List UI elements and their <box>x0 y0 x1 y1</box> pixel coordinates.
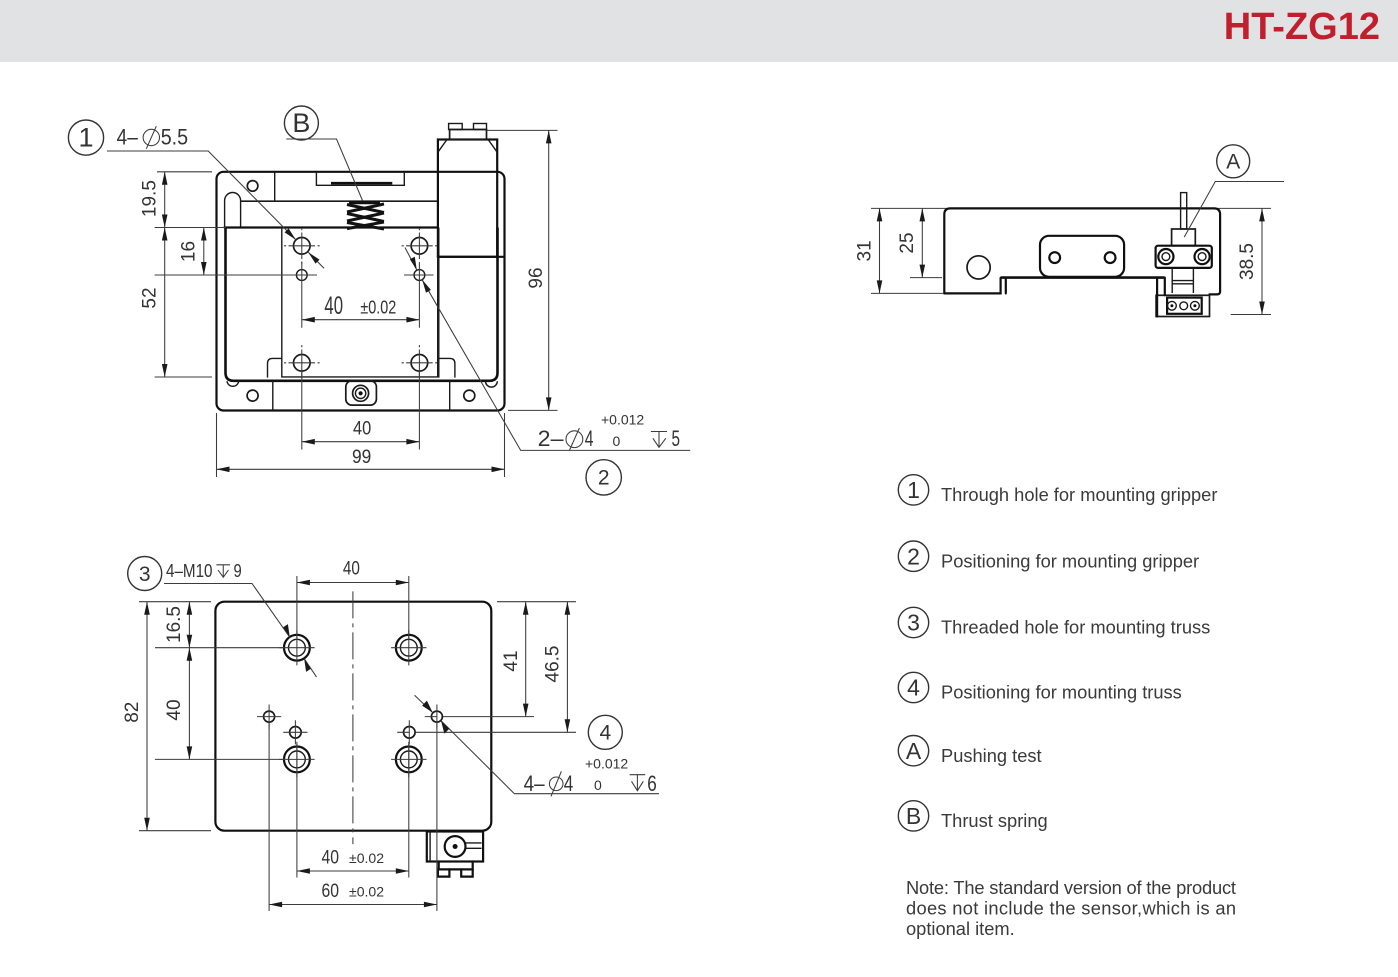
svg-text:5: 5 <box>672 426 681 451</box>
svg-text:4: 4 <box>907 675 920 701</box>
svg-text:±0.02: ±0.02 <box>349 884 384 900</box>
svg-text:16: 16 <box>179 241 200 262</box>
svg-text:B: B <box>906 803 921 829</box>
svg-text:5.5: 5.5 <box>161 125 188 150</box>
svg-text:2: 2 <box>907 543 920 569</box>
svg-text:2–: 2– <box>538 426 564 451</box>
svg-text:3: 3 <box>139 563 151 586</box>
svg-text:19.5: 19.5 <box>140 180 161 217</box>
svg-text:16.5: 16.5 <box>164 606 185 643</box>
svg-text:40: 40 <box>343 559 360 580</box>
svg-text:40: 40 <box>322 848 340 869</box>
svg-text:40: 40 <box>324 292 343 320</box>
svg-text:46.5: 46.5 <box>543 646 564 683</box>
svg-text:A: A <box>906 738 922 764</box>
svg-text:Note: The standard version of: Note: The standard version of the produc… <box>906 877 1236 898</box>
svg-text:A: A <box>1226 151 1240 174</box>
svg-text:52: 52 <box>140 287 161 308</box>
svg-text:38.5: 38.5 <box>1237 243 1258 280</box>
svg-text:B: B <box>292 108 310 138</box>
svg-text:96: 96 <box>526 267 547 288</box>
svg-text:25: 25 <box>897 232 918 253</box>
svg-text:Positioning for mounting truss: Positioning for mounting truss <box>941 682 1182 703</box>
svg-text:optional item.: optional item. <box>906 918 1015 939</box>
svg-text:4: 4 <box>599 722 611 745</box>
svg-text:0: 0 <box>613 433 621 449</box>
svg-text:0: 0 <box>594 777 602 793</box>
svg-text:4: 4 <box>564 771 574 796</box>
svg-text:4–: 4– <box>117 125 139 150</box>
svg-text:Positioning for mounting gripp: Positioning for mounting gripper <box>941 550 1199 571</box>
svg-text:4: 4 <box>585 426 594 451</box>
svg-text:4–: 4– <box>524 771 545 796</box>
svg-text:6: 6 <box>647 771 657 796</box>
svg-text:3: 3 <box>907 610 920 636</box>
svg-text:1: 1 <box>907 477 920 503</box>
svg-text:±0.02: ±0.02 <box>360 298 396 318</box>
svg-text:40: 40 <box>164 699 185 720</box>
svg-text:4–M10: 4–M10 <box>166 561 213 581</box>
svg-text:+0.012: +0.012 <box>585 756 628 772</box>
svg-text:+0.012: +0.012 <box>601 412 644 428</box>
svg-text:±0.02: ±0.02 <box>349 850 384 866</box>
svg-text:Through hole for mounting grip: Through hole for mounting gripper <box>941 484 1217 505</box>
svg-text:40: 40 <box>353 419 371 440</box>
svg-text:does not include the sensor,wh: does not include the sensor,which is an <box>906 898 1236 919</box>
svg-text:31: 31 <box>855 240 876 261</box>
svg-text:Thrust spring: Thrust spring <box>941 810 1048 831</box>
svg-text:1: 1 <box>78 123 93 153</box>
svg-text:82: 82 <box>122 702 143 723</box>
svg-text:60: 60 <box>322 881 340 902</box>
svg-text:99: 99 <box>352 447 371 468</box>
svg-text:Pushing test: Pushing test <box>941 745 1042 766</box>
svg-text:2: 2 <box>598 467 610 490</box>
svg-text:41: 41 <box>501 650 522 671</box>
svg-text:Threaded hole for mounting tru: Threaded hole for mounting truss <box>941 617 1210 638</box>
svg-text:9: 9 <box>234 561 242 581</box>
